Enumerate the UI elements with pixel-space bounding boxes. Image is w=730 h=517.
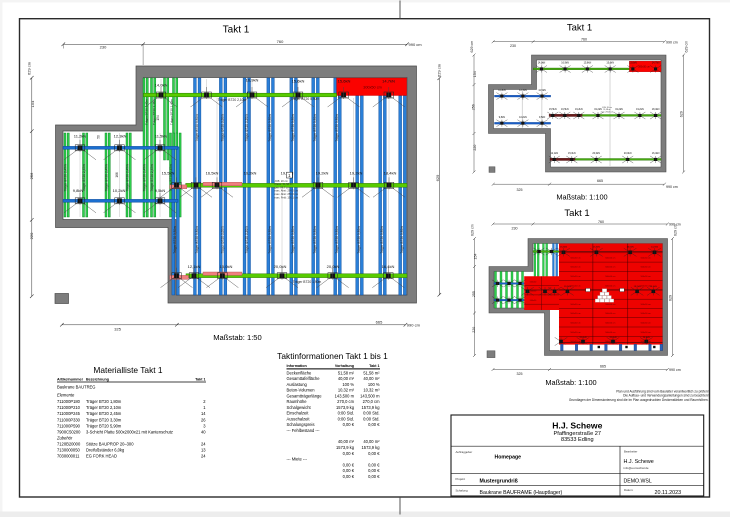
svg-text:Bezeichnung: Bezeichnung [86,378,109,382]
svg-text:990 cm: 990 cm [407,322,421,327]
svg-text:990 cm: 990 cm [666,185,678,189]
svg-text:Träger BT20 5,90m: Träger BT20 5,90m [86,423,122,428]
svg-text:154: 154 [473,254,477,260]
svg-text:50: 50 [97,135,101,139]
svg-text:Vorhaltung: Vorhaltung [335,364,354,368]
svg-text:Träger BT20 3,30m: Träger BT20 3,30m [400,226,404,254]
svg-text:Schalungspreis: Schalungspreis [287,422,315,427]
svg-text:19,2kN: 19,2kN [564,286,571,288]
svg-text:15,6kN: 15,6kN [627,247,634,249]
svg-text:711000P210: 711000P210 [57,405,81,410]
svg-text:325: 325 [517,372,523,376]
svg-text:500x50 cm: 500x50 cm [641,257,651,259]
svg-text:500x50 cm: 500x50 cm [570,276,580,278]
svg-text:Dreifußständer 6,0kg: Dreifußständer 6,0kg [86,448,125,453]
svg-text:Träger BT20 3,30m: Träger BT20 3,30m [244,114,248,142]
svg-text:83533 Edling: 83533 Edling [561,437,594,443]
svg-text:Träger BT20 2,10m: Träger BT20 2,10m [218,98,247,102]
svg-text:15,0kN: 15,0kN [568,152,576,155]
svg-text:0,00 €: 0,00 € [343,468,355,473]
svg-text:500x50 cm: 500x50 cm [641,304,651,306]
svg-text:Stütze BAUPROP 20–300: Stütze BAUPROP 20–300 [86,442,134,447]
svg-text:14: 14 [201,411,206,416]
svg-text:Raumhöhe: Raumhöhe [287,399,308,404]
svg-text:20.11.2023: 20.11.2023 [655,490,682,496]
svg-text:15,6kN: 15,6kN [560,247,567,249]
svg-text:Takt 1: Takt 1 [369,364,379,368]
svg-text:14,7kN: 14,7kN [652,62,660,65]
svg-text:629 cm: 629 cm [470,224,474,236]
svg-text:500x50: 500x50 [530,300,537,302]
svg-text:Taktinformationen Takt 1 bis: Taktinformationen Takt 1 bis 1 [277,351,388,361]
svg-text:Information: Information [287,364,308,368]
svg-text:Träger BT20 3,30m: Träger BT20 3,30m [221,114,225,142]
svg-text:990 cm: 990 cm [409,42,423,47]
svg-text:Einschalzeit: Einschalzeit [287,411,310,416]
svg-text:Baukrane BAUFRAME (Hauptlager): Baukrane BAUFRAME (Hauptlager) [480,490,563,496]
svg-text:9,8kN: 9,8kN [73,188,84,193]
svg-text:300x50 cm: 300x50 cm [363,85,382,89]
svg-text:info@euroschal.de: info@euroschal.de [624,466,649,470]
svg-text:500x50 cm: 500x50 cm [605,285,615,287]
svg-text:629 cm: 629 cm [674,224,678,236]
svg-text:629 cm: 629 cm [27,61,32,75]
svg-text:Auftraggeber: Auftraggeber [456,450,473,454]
svg-text:500x50 cm: 500x50 cm [641,267,651,269]
svg-text:Träger BT20 3,30m: Träger BT20 3,30m [291,226,295,254]
svg-text:500x50: 500x50 [530,291,537,293]
svg-text:40,00 m²: 40,00 m² [338,439,355,444]
svg-text:15,6kN: 15,6kN [629,62,637,65]
svg-text:629 cm: 629 cm [685,41,689,53]
svg-text:Zubehör: Zubehör [56,436,73,441]
svg-text:154: 154 [473,71,477,77]
svg-text:19,2kN: 19,2kN [615,108,623,111]
svg-text:Träger BT20 3,30m: Träger BT20 3,30m [335,114,339,142]
svg-text:230: 230 [100,45,107,50]
svg-text:Gesamtträgerlänge: Gesamtträgerlänge [287,393,323,398]
svg-text:16,5kN: 16,5kN [561,108,569,111]
svg-text:11,5kN: 11,5kN [155,133,167,138]
svg-text:10,2kN: 10,2kN [519,116,527,119]
svg-text:18,4kN: 18,4kN [652,108,660,111]
svg-text:500x50 cm: 500x50 cm [605,276,615,278]
svg-text:100 %: 100 % [368,382,380,387]
svg-text:Materialliste Takt 1: Materialliste Takt 1 [93,365,163,375]
svg-text:0:00 Std.: 0:00 Std. [363,416,379,421]
svg-text:14,0kN: 14,0kN [155,83,168,88]
svg-text:500x50 cm: 500x50 cm [570,341,580,343]
svg-text:11,5kN: 11,5kN [538,89,546,92]
svg-text:0,00 €: 0,00 € [368,468,380,473]
svg-text:500x50 cm: 500x50 cm [605,257,615,259]
svg-text:16,5kN: 16,5kN [206,170,219,175]
svg-text:629: 629 [679,111,683,117]
svg-text:760: 760 [581,38,587,42]
svg-text:Ausschalzeit: Ausschalzeit [287,416,311,421]
svg-text:0,00 €: 0,00 € [343,474,355,479]
svg-text:13: 13 [201,448,206,453]
svg-text:H.J. Schewe: H.J. Schewe [624,459,654,465]
svg-text:15,5kN: 15,5kN [549,108,557,111]
svg-text:220: 220 [29,232,34,239]
svg-text:Träger BT20 3,30m: Träger BT20 3,30m [313,226,317,254]
svg-text:19,2kN: 19,2kN [316,170,329,175]
svg-text:51,58 m²: 51,58 m² [363,370,380,375]
svg-text:500x50 cm: 500x50 cm [605,332,615,334]
svg-text:19,2kN: 19,2kN [575,108,583,111]
svg-text:7030000011: 7030000011 [57,454,80,459]
svg-text:Träger BT20 3,30m: Träger BT20 3,30m [195,226,199,254]
svg-text:Grundlagen der Dimensionierung: Grundlagen der Dimensionierung sind die … [569,398,709,402]
svg-text:7130000050: 7130000050 [57,448,80,453]
svg-text:18,4kN: 18,4kN [384,170,397,175]
svg-text:Projekt:: Projekt: [456,477,466,481]
svg-text:230: 230 [512,227,518,231]
svg-text:166: 166 [115,172,119,178]
svg-text:154: 154 [30,100,35,107]
svg-text:H.J. Schewe: H.J. Schewe [552,420,602,430]
svg-text:15,6kN: 15,6kN [584,62,592,65]
svg-text:0,00 €: 0,00 € [368,474,380,479]
svg-text:0,00 €: 0,00 € [368,451,380,456]
svg-text:16,4kN: 16,4kN [643,337,650,339]
svg-text:max: 294,3 cm: max: 294,3 cm [601,111,614,113]
svg-text:1573,9 kg: 1573,9 kg [362,445,381,450]
svg-text:1573,9 kg: 1573,9 kg [336,405,355,410]
svg-text:711000P245: 711000P245 [57,411,81,416]
svg-text:--- Miete ---: --- Miete --- [287,457,308,462]
svg-text:270,0 cm: 270,0 cm [337,399,354,404]
svg-text:0,00 €: 0,00 € [343,451,355,456]
svg-text:100 %: 100 % [342,382,354,387]
svg-text:20,0kN: 20,0kN [592,152,600,155]
svg-text:Homepage: Homepage [495,454,522,460]
svg-text:0:00 Std.: 0:00 Std. [363,411,379,416]
svg-text:15,0kN: 15,0kN [220,264,233,269]
svg-text:Datum:: Datum: [624,488,634,492]
svg-text:Schalung: Schalung [456,489,468,493]
svg-text:Deckenfläche: Deckenfläche [287,370,313,375]
svg-text:255: 255 [472,291,476,297]
svg-text:0:00 Std.: 0:00 Std. [338,416,354,421]
svg-text:Takt 1: Takt 1 [567,23,592,34]
svg-text:15,6kN: 15,6kN [593,247,600,249]
svg-text:500x50 cm: 500x50 cm [570,267,580,269]
svg-text:0,00 €: 0,00 € [368,422,380,427]
svg-text:12,1kN: 12,1kN [188,264,201,269]
svg-text:20,0kN: 20,0kN [274,264,287,269]
svg-text:Träger BT20 3,30m: Träger BT20 3,30m [173,226,177,254]
svg-text:220: 220 [472,327,476,333]
svg-text:325: 325 [517,188,523,192]
svg-text:51,58 m²: 51,58 m² [338,370,355,375]
svg-text:Träger BT20 3,30m: Träger BT20 3,30m [380,226,384,254]
svg-text:Elemente: Elemente [57,393,75,398]
svg-text:16,4kN: 16,4kN [652,152,660,155]
svg-text:Träger BT20 1,90m: Träger BT20 1,90m [293,280,322,284]
svg-text:Träger BT20 3,30m: Träger BT20 3,30m [291,114,295,142]
svg-text:Träger BT20 3,30m: Träger BT20 3,30m [357,226,361,254]
svg-text:711000P330: 711000P330 [57,417,81,422]
svg-text:500x50 cm: 500x50 cm [605,323,615,325]
svg-text:15,5kN: 15,5kN [162,170,175,175]
svg-text:1573,9 kg: 1573,9 kg [336,445,355,450]
svg-text:711000P590: 711000P590 [57,423,81,428]
svg-text:20,0kN: 20,0kN [580,337,587,339]
svg-text:Träger BT20 3,30m: Träger BT20 3,30m [221,226,225,254]
svg-text:Träger BT20 2,45m: Träger BT20 2,45m [126,164,130,192]
svg-text:19,2kN: 19,2kN [634,286,641,288]
svg-text:Mustergrundriß: Mustergrundriß [480,478,519,484]
svg-text:9,5kN: 9,5kN [155,188,166,193]
svg-text:7900C50200: 7900C50200 [57,429,81,434]
svg-text:Gesamttafelfläche: Gesamttafelfläche [287,376,321,381]
svg-text:Träger BT20 2,45m: Träger BT20 2,45m [105,164,109,192]
svg-text:16,4kN: 16,4kN [382,264,395,269]
svg-text:18,4kN: 18,4kN [650,286,657,288]
svg-text:760: 760 [277,39,284,44]
svg-text:40: 40 [201,429,206,434]
svg-text:Baukrane BAUTREG: Baukrane BAUTREG [57,384,95,389]
svg-text:Artikelnummer: Artikelnummer [57,378,84,382]
svg-text:Träger BT20 2,40m: Träger BT20 2,40m [170,99,174,125]
svg-text:9,5kN: 9,5kN [539,116,546,119]
svg-text:20,0kN: 20,0kN [610,337,617,339]
svg-text:Pfaffingerstraße 27: Pfaffingerstraße 27 [554,431,601,437]
svg-text:11,2kN: 11,2kN [498,89,506,92]
svg-text:230: 230 [510,44,516,48]
svg-text:500x50 cm: 500x50 cm [570,304,580,306]
svg-text:15,6kN: 15,6kN [292,79,305,84]
svg-text:500x50 cm: 500x50 cm [570,323,580,325]
svg-text:12,3kN: 12,3kN [114,133,127,138]
svg-text:Takt 1: Takt 1 [223,25,250,36]
svg-text:19,2kN: 19,2kN [636,108,644,111]
svg-text:40,00 m²: 40,00 m² [363,376,380,381]
svg-text:500x50 cm: 500x50 cm [641,276,651,278]
svg-text:Träger BT20 3,30m: Träger BT20 3,30m [313,114,317,142]
svg-text:7120B20000: 7120B20000 [57,442,81,447]
svg-text:990 cm: 990 cm [666,40,678,44]
svg-text:--- Fehlbestand ---: --- Fehlbestand --- [287,428,321,433]
svg-text:40,00 m²: 40,00 m² [338,376,355,381]
svg-text:665: 665 [600,364,606,368]
svg-text:Maßstab: 1:100: Maßstab: 1:100 [556,192,607,201]
svg-text:19,2kN: 19,2kN [244,170,257,175]
svg-text:629 cm: 629 cm [437,63,442,77]
svg-text:20,0kN: 20,0kN [327,264,340,269]
svg-text:40,00 m²: 40,00 m² [363,439,380,444]
svg-text:256: 256 [29,172,34,179]
svg-text:325: 325 [114,327,121,332]
svg-text:3-Schicht Platte 500x2000x21 m: 3-Schicht Platte 500x2000x21 mit Kantens… [86,429,173,434]
svg-text:500x50 cm: 500x50 cm [605,304,615,306]
svg-text:Träger BT20 2,45m: Träger BT20 2,45m [143,164,147,192]
svg-text:16,9kN: 16,9kN [561,62,569,65]
svg-text:629 cm: 629 cm [470,41,474,53]
svg-text:500x50 cm: 500x50 cm [641,323,651,325]
svg-text:16,9kN: 16,9kN [246,78,259,83]
svg-text:15,6kN: 15,6kN [338,79,351,84]
svg-text:max. Feld: 156,1 cm: max. Feld: 156,1 cm [275,195,299,199]
svg-text:1573,9 kg: 1573,9 kg [362,405,381,410]
svg-text:629: 629 [668,295,672,301]
svg-text:990 cm: 990 cm [669,368,681,372]
svg-text:24: 24 [201,454,206,459]
svg-text:Beton-Volumen: Beton-Volumen [287,388,316,393]
svg-text:10,2kN: 10,2kN [113,188,126,193]
svg-text:500x50 cm: 500x50 cm [570,313,580,315]
svg-text:Träger BT20 2,40m: Träger BT20 2,40m [145,99,149,125]
svg-text:500x50 cm: 500x50 cm [570,257,580,259]
svg-text:Träger BT20 3,30m: Träger BT20 3,30m [335,226,339,254]
svg-text:12,1kN: 12,1kN [551,152,559,155]
svg-text:500x50 cm: 500x50 cm [641,313,651,315]
svg-text:14,0kN: 14,0kN [538,62,546,65]
svg-text:Schalgewicht: Schalgewicht [287,405,312,410]
svg-text:Träger BT20 3,30m: Träger BT20 3,30m [244,226,248,254]
svg-text:EG FORK HEAD: EG FORK HEAD [86,454,117,459]
svg-text:0:00 Std.: 0:00 Std. [338,411,354,416]
svg-text:500x50 cm: 500x50 cm [570,285,580,287]
svg-text:143,500 m: 143,500 m [360,393,380,398]
svg-text:Auslastung: Auslastung [287,382,308,387]
svg-text:500x50 cm: 500x50 cm [641,332,651,334]
svg-text:9,8kN: 9,8kN [499,116,506,119]
svg-text:Träger BT20 1,80m: Träger BT20 1,80m [86,399,122,404]
svg-text:711000P180: 711000P180 [57,399,81,404]
svg-text:Träger BT20 3,30m: Träger BT20 3,30m [268,114,272,142]
svg-text:Träger BT20 3,30m: Träger BT20 3,30m [86,417,122,422]
svg-text:Träger BT20 3,30m: Träger BT20 3,30m [195,114,199,142]
svg-text:760: 760 [598,220,604,224]
svg-text:154: 154 [156,115,160,121]
svg-text:Träger BT20 2,45m: Träger BT20 2,45m [150,164,154,192]
svg-text:0,00 €: 0,00 € [343,422,355,427]
svg-text:220: 220 [473,145,477,151]
svg-text:10,32 m³: 10,32 m³ [338,388,355,393]
svg-text:0,00 €: 0,00 € [343,462,355,467]
svg-text:Takt 1: Takt 1 [564,208,589,219]
svg-text:665: 665 [597,179,603,183]
svg-text:270,0 cm: 270,0 cm [363,399,380,404]
svg-text:14,7kN: 14,7kN [651,247,658,249]
svg-text:500x50 cm: 500x50 cm [605,313,615,315]
svg-text:500x50 cm: 500x50 cm [570,332,580,334]
svg-text:DEMO.WSL: DEMO.WSL [624,478,652,484]
svg-text:Maßstab: 1:100: Maßstab: 1:100 [545,378,596,387]
svg-text:12,3kN: 12,3kN [519,89,527,92]
svg-text:15,6kN: 15,6kN [606,62,614,65]
svg-text:Träger BT20 2,45m: Träger BT20 2,45m [86,411,122,416]
svg-text:26: 26 [201,417,206,422]
svg-text:24: 24 [201,442,206,447]
svg-text:Takt 1: Takt 1 [195,378,205,382]
svg-text:11,2kN: 11,2kN [74,133,86,138]
svg-text:143,500 m: 143,500 m [335,393,355,398]
svg-text:Träger BT20 2,45m: Träger BT20 2,45m [64,164,68,192]
svg-text:256: 256 [471,104,475,110]
svg-text:Träger BT20 2,10m: Träger BT20 2,10m [86,405,122,410]
svg-text:0,00 €: 0,00 € [368,462,380,467]
svg-text:Maßstab: 1:50: Maßstab: 1:50 [213,333,262,342]
svg-text:629: 629 [435,174,440,181]
svg-text:10,32 m³: 10,32 m³ [363,388,380,393]
svg-text:14,7kN: 14,7kN [382,79,395,84]
svg-text:20,0kN: 20,0kN [624,152,632,155]
svg-text:665: 665 [376,319,383,324]
svg-text:300x50 cm: 300x50 cm [638,66,650,69]
svg-text:500x50 cm: 500x50 cm [605,267,615,269]
svg-text:Bearbeiter: Bearbeiter [624,450,637,454]
svg-text:500x50: 500x50 [530,281,537,283]
svg-text:Träger BT20 3,30m: Träger BT20 3,30m [268,226,272,254]
svg-text:19,2kN: 19,2kN [350,170,363,175]
